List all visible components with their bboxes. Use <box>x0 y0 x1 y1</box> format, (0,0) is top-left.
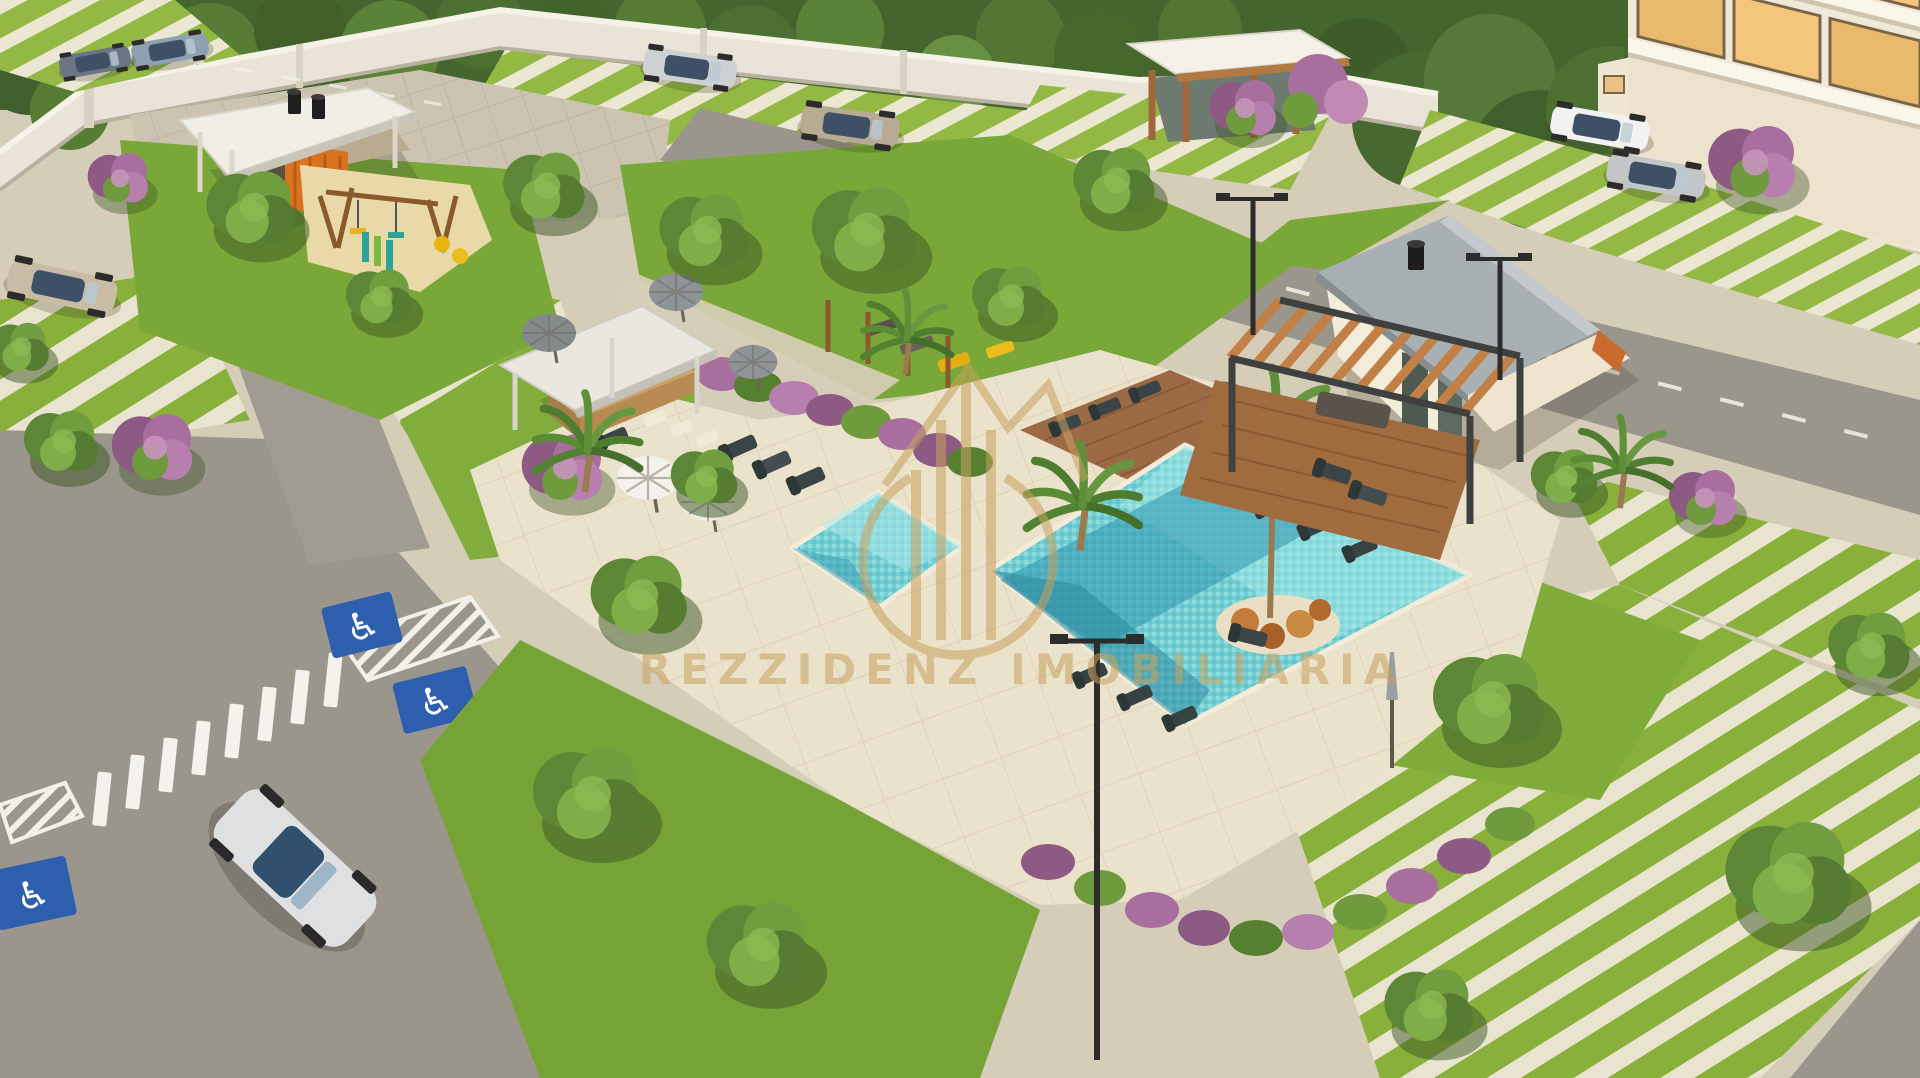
spring-rider <box>434 236 450 252</box>
scene-canvas: ♿ ♿ ♿ <box>0 0 1920 1078</box>
roof-vent <box>1407 240 1425 270</box>
rendered-scene: ♿ ♿ ♿ <box>0 0 1920 1078</box>
swing-seat <box>388 232 404 238</box>
watermark-text: REZZIDENZ IMOBILIARIA <box>639 645 1405 694</box>
spring-rider <box>452 248 468 264</box>
